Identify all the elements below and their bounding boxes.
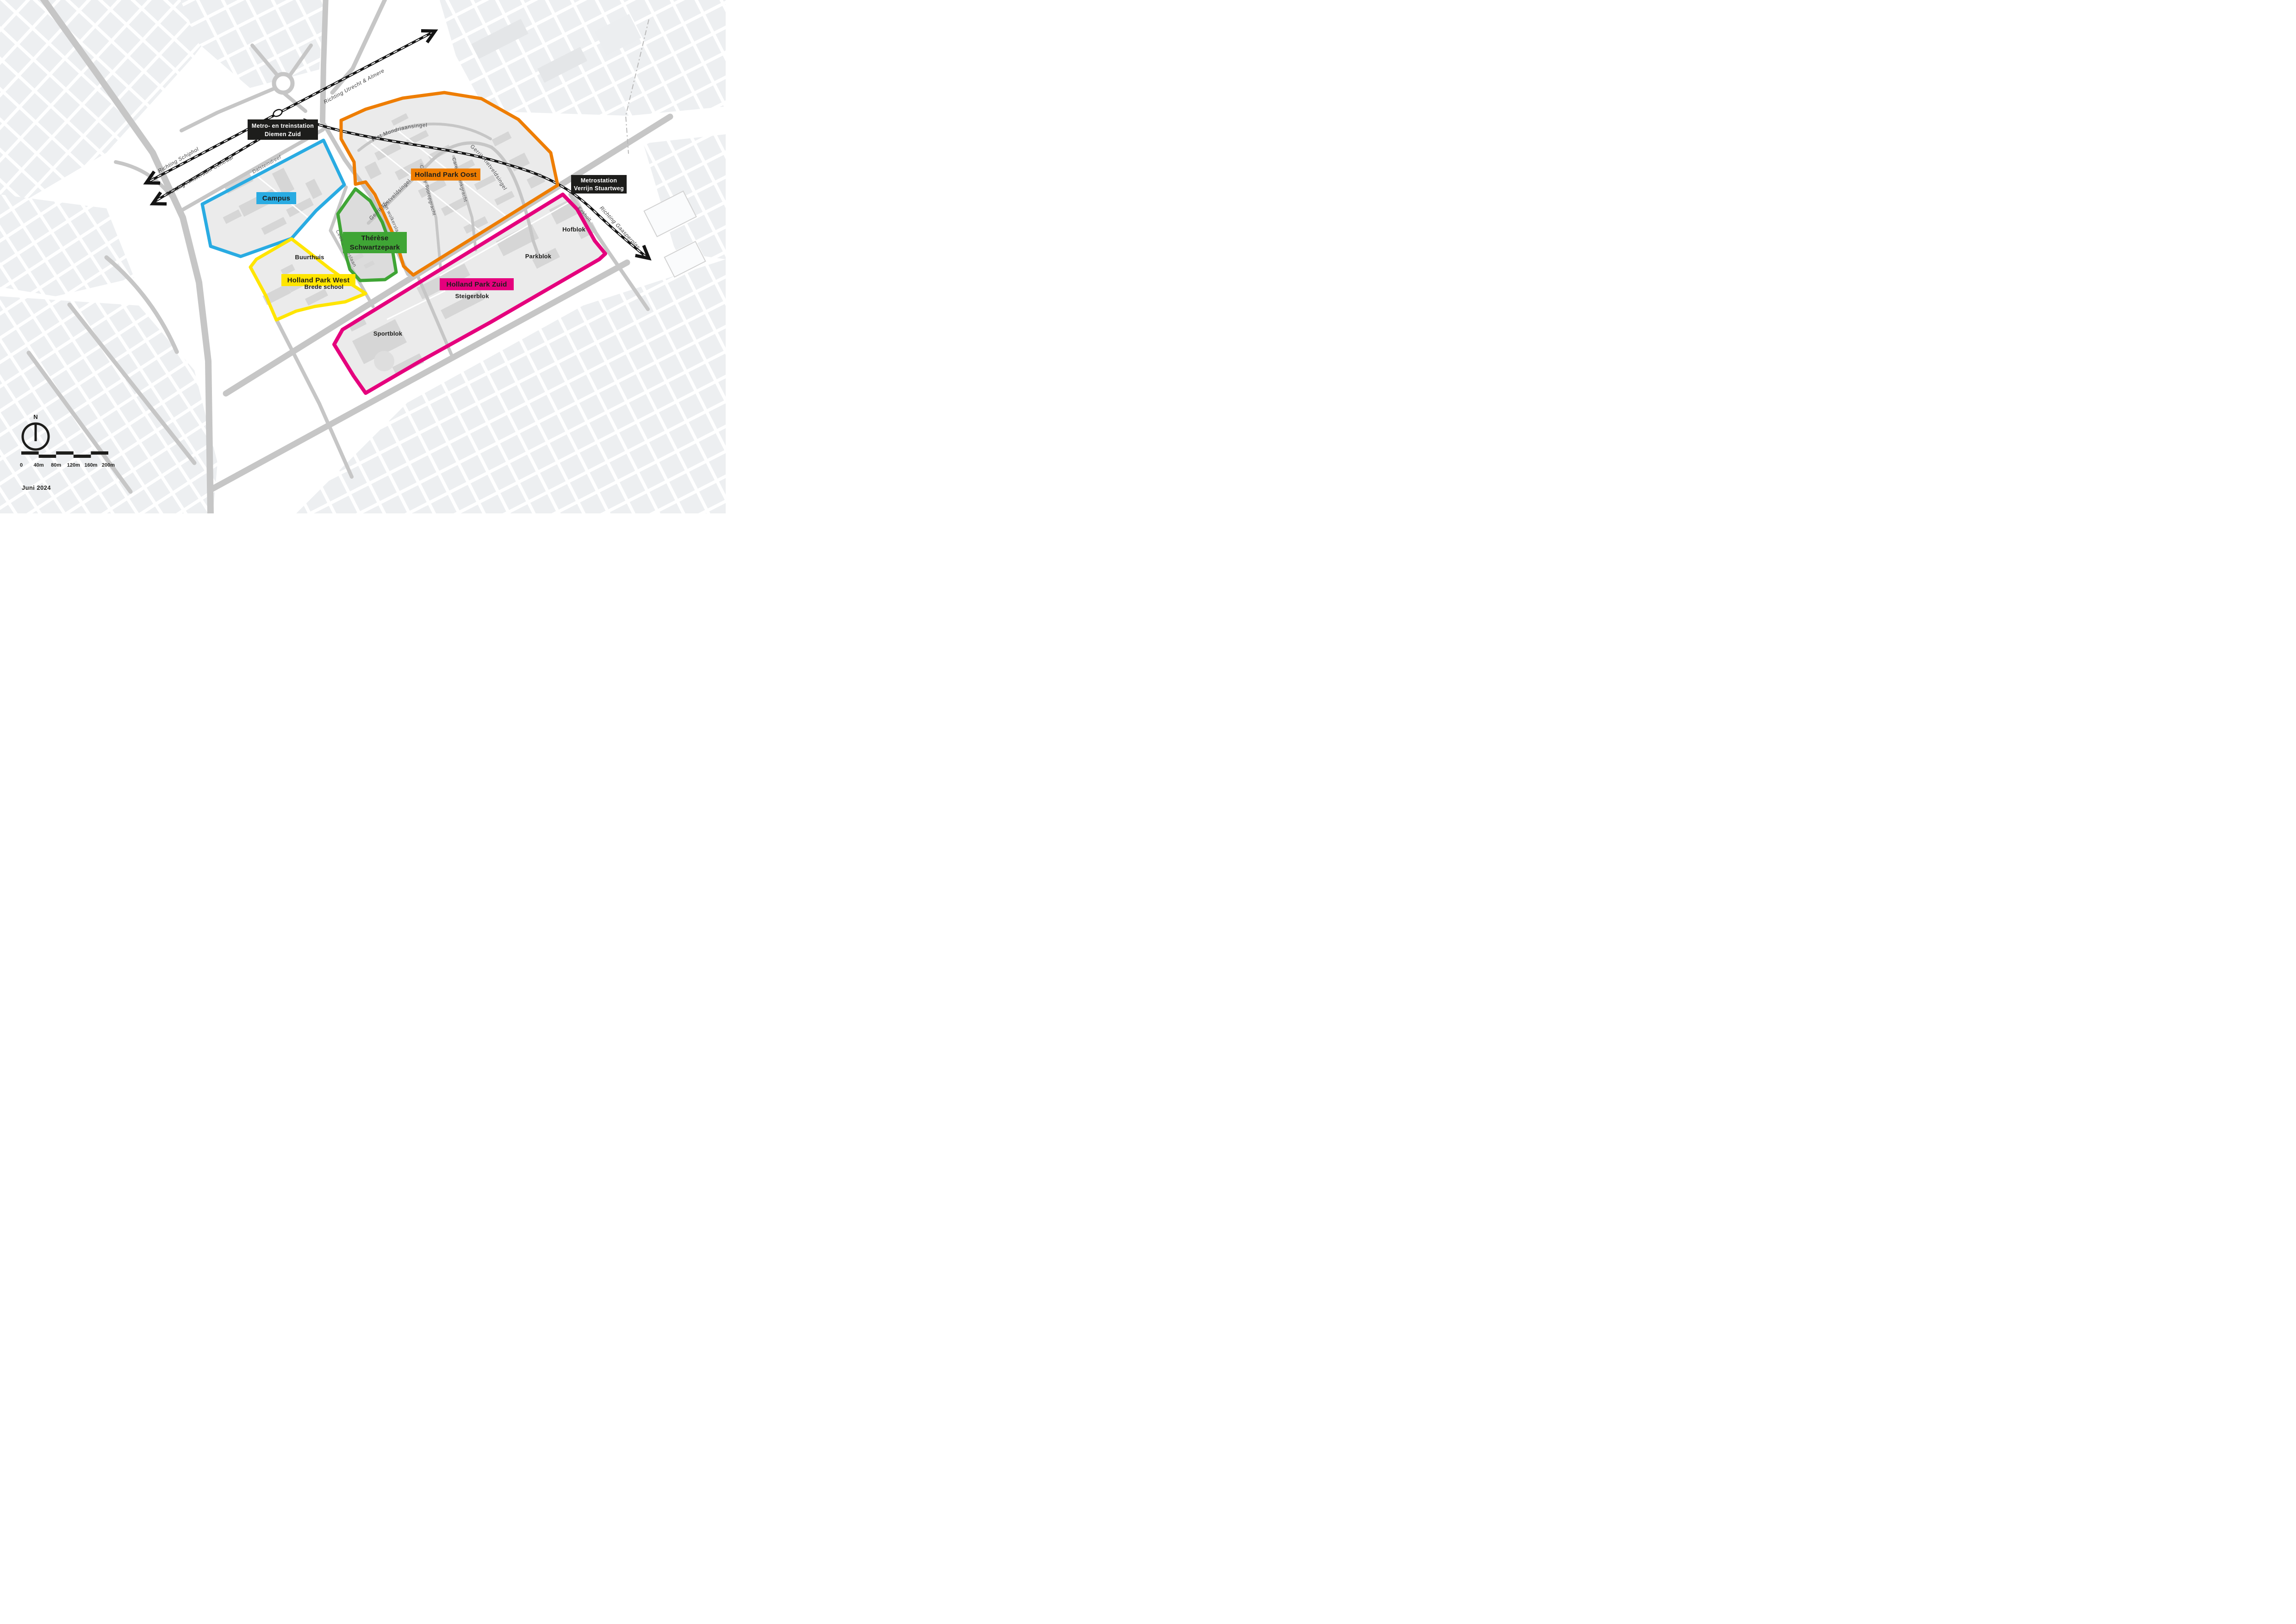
north-label: N xyxy=(33,413,37,420)
station-box-verrijn-stuartweg: Metrostation Verrijn Stuartweg xyxy=(571,175,627,194)
svg-text:Thérèse: Thérèse xyxy=(361,234,389,242)
block-label-hofblok: Hofblok xyxy=(562,226,585,233)
svg-text:Schwartzepark: Schwartzepark xyxy=(350,244,400,251)
block-label-steigerblok: Steigerblok xyxy=(455,293,490,300)
scale-tick-200: 200m xyxy=(102,462,115,468)
campus-label: Campus xyxy=(256,192,296,204)
block-label-brede-school: Brede school xyxy=(305,283,344,290)
holland-park-map: Dalsteindreef Piet Mondriaansingel Gerri… xyxy=(0,0,726,513)
svg-text:Campus: Campus xyxy=(262,194,290,202)
scale-tick-120: 120m xyxy=(67,462,80,468)
scale-tick-0: 0 xyxy=(20,462,23,468)
svg-text:Holland Park Zuid: Holland Park Zuid xyxy=(447,281,507,288)
block-label-buurthuis: Buurthuis xyxy=(295,254,324,261)
direction-label-schiphol: Richting Schiphol xyxy=(157,147,200,174)
map-date: Juni 2024 xyxy=(22,484,51,491)
map-canvas: Dalsteindreef Piet Mondriaansingel Gerri… xyxy=(0,0,726,513)
therese-schwartzepark-label: Thérèse Schwartzepark xyxy=(343,232,407,253)
station-box-diemen-zuid: Metro- en treinstation Diemen Zuid xyxy=(248,119,318,140)
scale-tick-40: 40m xyxy=(34,462,44,468)
block-label-sportblok: Sportblok xyxy=(373,330,403,337)
scale-tick-80: 80m xyxy=(51,462,61,468)
svg-text:Verrijn Stuartweg: Verrijn Stuartweg xyxy=(574,185,624,192)
holland-park-zuid-label: Holland Park Zuid xyxy=(440,278,514,290)
block-label-parkblok: Parkblok xyxy=(525,253,552,260)
svg-text:Diemen Zuid: Diemen Zuid xyxy=(265,131,301,137)
svg-text:Metrostation: Metrostation xyxy=(581,177,617,184)
svg-text:Metro- en treinstation: Metro- en treinstation xyxy=(252,123,314,129)
holland-park-oost-label: Holland Park Oost xyxy=(411,169,480,181)
svg-text:Holland Park Oost: Holland Park Oost xyxy=(415,171,476,179)
scale-tick-160: 160m xyxy=(84,462,97,468)
